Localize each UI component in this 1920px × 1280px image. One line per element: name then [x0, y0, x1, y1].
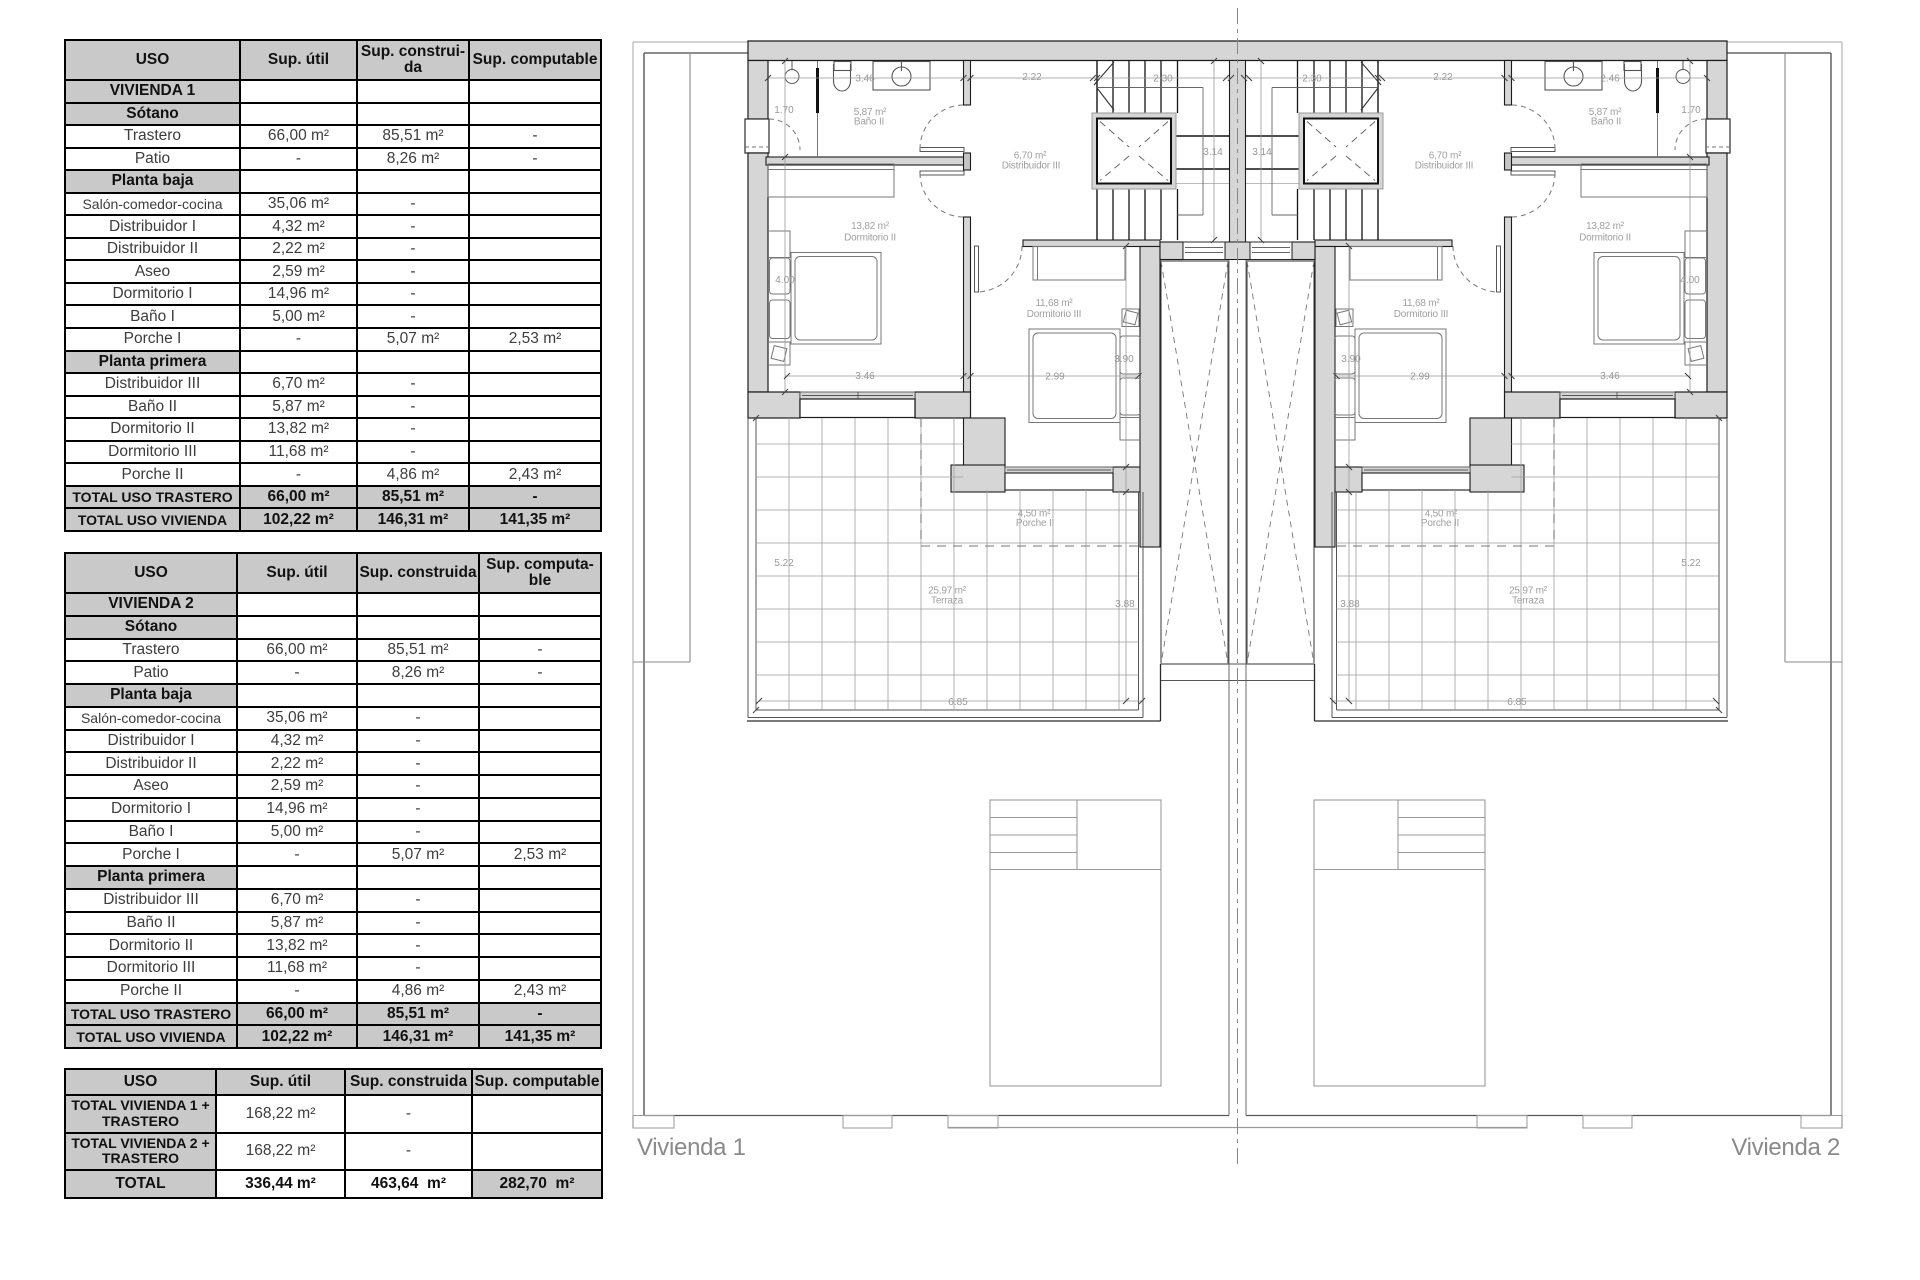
svg-text:Porche II: Porche II: [1421, 518, 1459, 529]
svg-text:11,68 m²: 11,68 m²: [1035, 298, 1073, 309]
svg-text:13,82 m²: 13,82 m²: [851, 221, 890, 232]
svg-text:Distribuidor III: Distribuidor III: [1002, 161, 1061, 172]
svg-text:3.14: 3.14: [1203, 147, 1223, 158]
svg-text:Dormitorio III: Dormitorio III: [1027, 309, 1081, 320]
svg-text:Baño II: Baño II: [854, 117, 884, 128]
svg-text:5.22: 5.22: [1681, 558, 1701, 569]
svg-text:11,68 m²: 11,68 m²: [1402, 298, 1440, 309]
svg-text:2.46: 2.46: [1600, 74, 1620, 85]
svg-text:2.30: 2.30: [1153, 74, 1173, 85]
svg-text:1.70: 1.70: [1681, 105, 1701, 116]
svg-text:6.85: 6.85: [948, 697, 968, 708]
svg-text:Vivienda 1: Vivienda 1: [637, 1134, 746, 1161]
svg-text:3.88: 3.88: [1340, 599, 1360, 610]
svg-text:Vivienda 2: Vivienda 2: [1731, 1134, 1840, 1161]
svg-text:Distribuidor III: Distribuidor III: [1415, 161, 1474, 172]
svg-text:2.22: 2.22: [1022, 72, 1042, 83]
svg-text:5.22: 5.22: [774, 558, 794, 569]
svg-text:3.90: 3.90: [1114, 354, 1134, 365]
svg-text:Terraza: Terraza: [1512, 596, 1545, 607]
svg-text:3.46: 3.46: [1600, 371, 1620, 382]
svg-text:6.85: 6.85: [1507, 697, 1527, 708]
svg-text:2.30: 2.30: [1302, 74, 1322, 85]
svg-text:Porche II: Porche II: [1016, 518, 1054, 529]
svg-text:Dormitorio II: Dormitorio II: [844, 233, 896, 244]
svg-text:13,82 m²: 13,82 m²: [1586, 221, 1625, 232]
svg-text:3.90: 3.90: [1341, 354, 1361, 365]
svg-text:3.46: 3.46: [855, 74, 875, 85]
svg-text:4.00: 4.00: [1680, 275, 1700, 286]
svg-text:Baño II: Baño II: [1591, 117, 1621, 128]
svg-text:1.70: 1.70: [774, 105, 794, 116]
svg-text:2.99: 2.99: [1045, 372, 1065, 383]
svg-text:3.88: 3.88: [1115, 599, 1135, 610]
svg-text:Dormitorio II: Dormitorio II: [1579, 233, 1631, 244]
svg-text:2.22: 2.22: [1433, 72, 1453, 83]
svg-text:2.99: 2.99: [1410, 372, 1430, 383]
svg-text:Terraza: Terraza: [931, 596, 964, 607]
svg-text:3.46: 3.46: [855, 371, 875, 382]
svg-text:Dormitorio III: Dormitorio III: [1394, 309, 1448, 320]
svg-text:4.00: 4.00: [775, 275, 795, 286]
svg-text:3.14: 3.14: [1252, 147, 1272, 158]
